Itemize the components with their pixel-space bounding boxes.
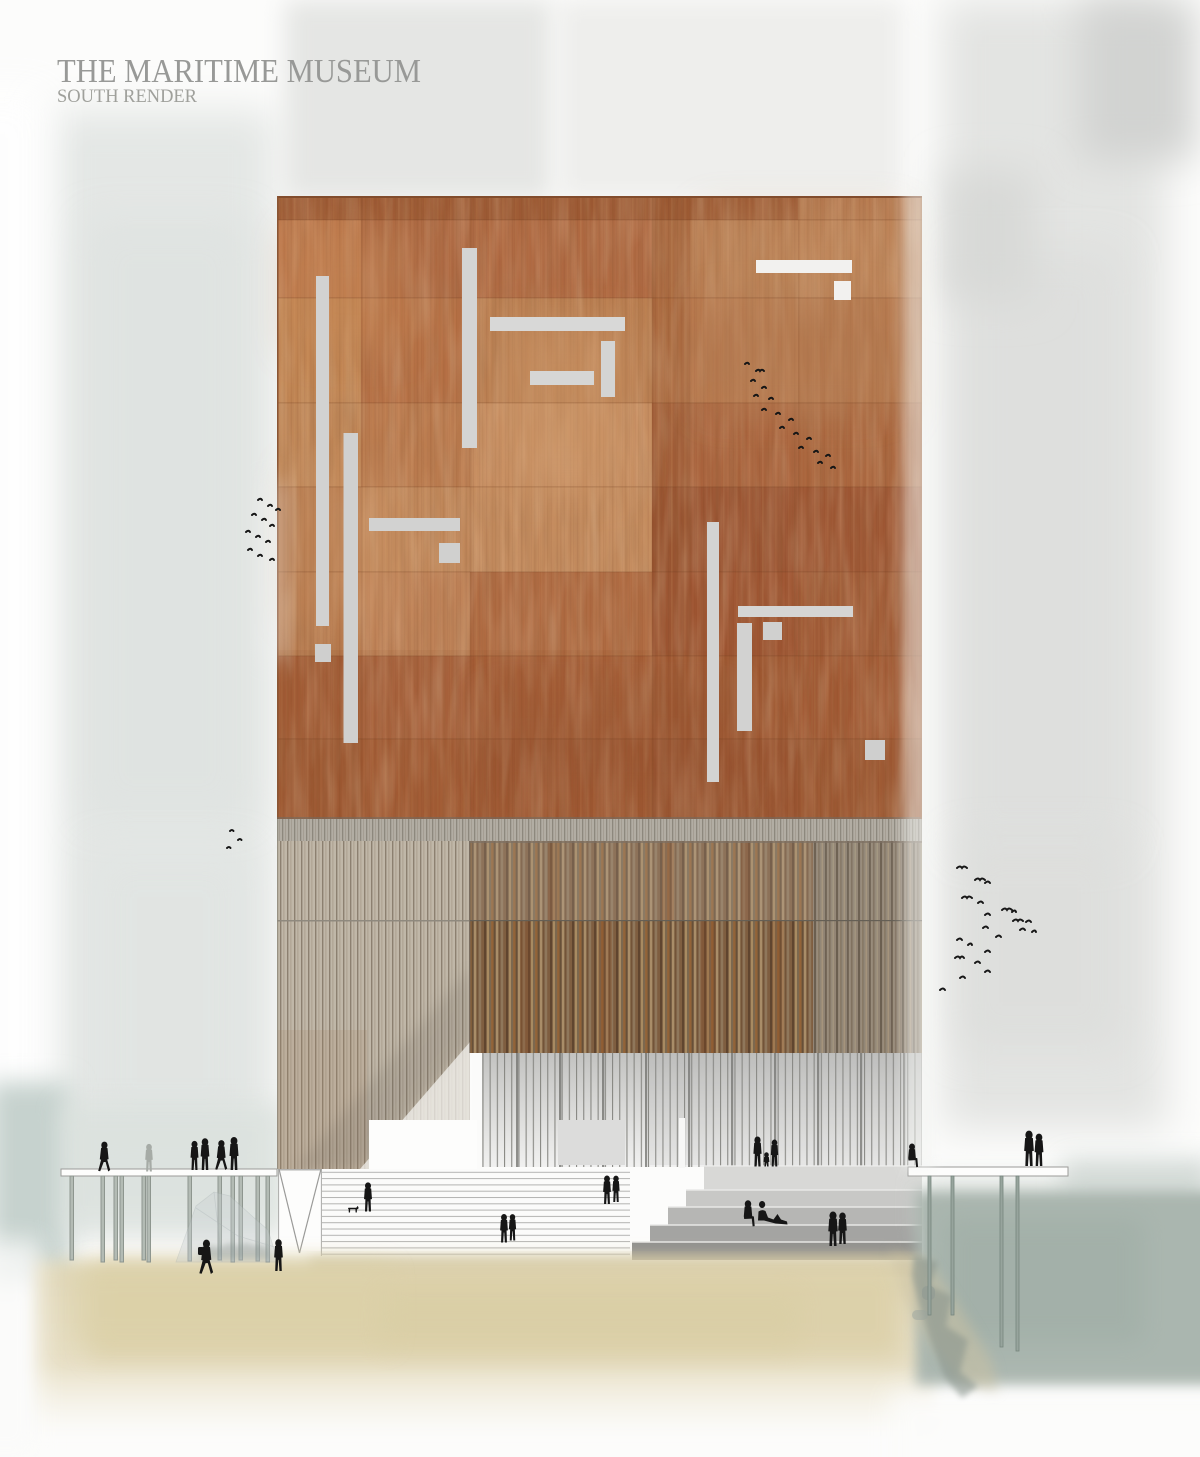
svg-text:SOUTH RENDER: SOUTH RENDER [57, 86, 197, 107]
svg-text:THE MARITIME MUSEUM: THE MARITIME MUSEUM [57, 53, 421, 90]
